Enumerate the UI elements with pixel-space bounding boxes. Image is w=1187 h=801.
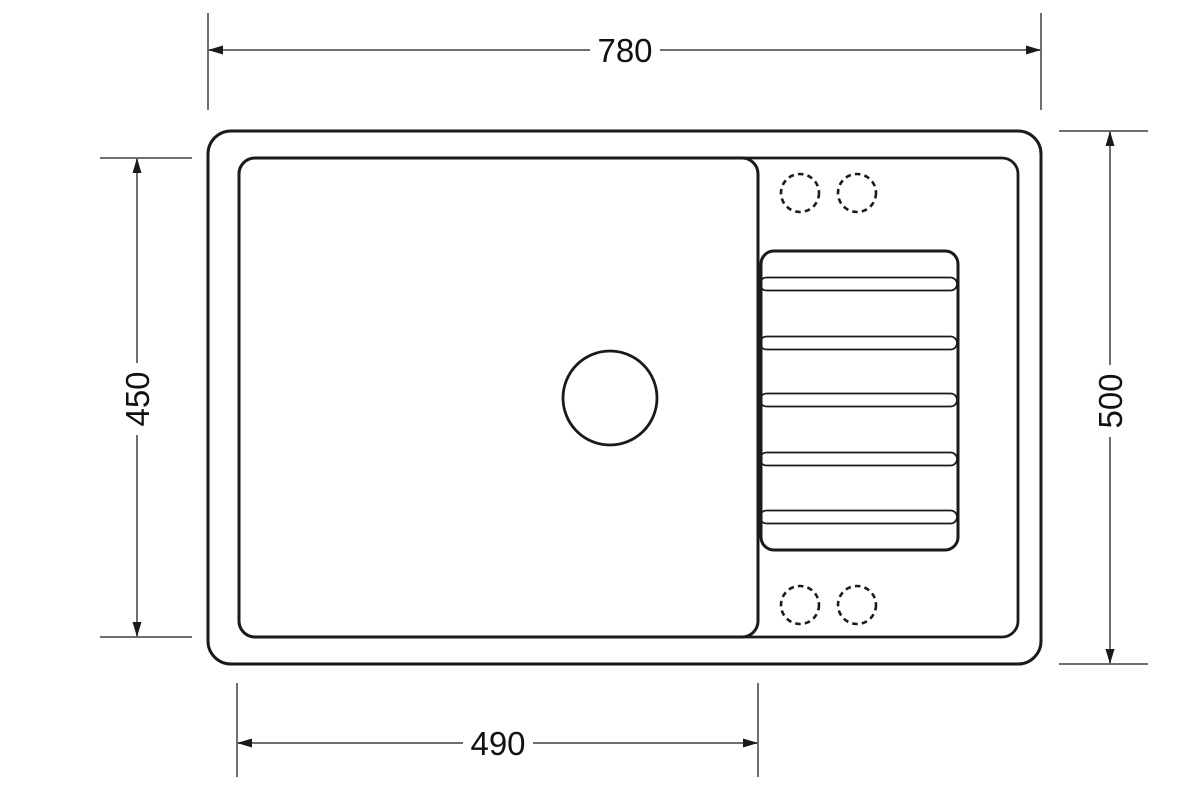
tap-hole-dashed xyxy=(838,586,876,624)
tap-hole-dashed xyxy=(838,174,876,212)
dimension-label-backgrounds xyxy=(117,30,1130,763)
arrowhead-icon xyxy=(1106,131,1115,146)
arrowhead-icon xyxy=(237,739,252,748)
dimension-lines-group xyxy=(100,13,1148,777)
sink-bowl xyxy=(239,158,758,637)
arrowhead-icon xyxy=(133,158,142,173)
dimension-arrowheads-group xyxy=(133,46,1115,748)
sink-technical-drawing: 780 450 500 490 xyxy=(0,0,1187,801)
drainer-board xyxy=(761,251,958,550)
arrowhead-icon xyxy=(133,622,142,637)
dim-left-label: 450 xyxy=(119,371,156,426)
dim-right-label: 500 xyxy=(1092,373,1129,428)
dim-top-label: 780 xyxy=(597,32,652,69)
tap-holes-group xyxy=(781,174,876,624)
drain-hole xyxy=(563,351,657,445)
sink-inner-rim xyxy=(239,158,1018,637)
sink-outlines-group xyxy=(208,131,1041,664)
drainer-groove xyxy=(760,511,957,524)
arrowhead-icon xyxy=(1026,46,1041,55)
arrowhead-icon xyxy=(1106,649,1115,664)
tap-hole-dashed xyxy=(781,586,819,624)
dim-bottom-label: 490 xyxy=(470,725,525,762)
drainer-groove xyxy=(760,394,957,407)
arrowhead-icon xyxy=(743,739,758,748)
dimension-labels-group: 780 450 500 490 xyxy=(119,32,1129,762)
drainer-grooves-group xyxy=(760,278,957,524)
tap-hole-dashed xyxy=(781,174,819,212)
drainer-groove xyxy=(760,337,957,350)
arrowhead-icon xyxy=(208,46,223,55)
drainer-groove xyxy=(760,453,957,466)
drawing-canvas: 780 450 500 490 xyxy=(0,0,1187,801)
sink-outer-edge xyxy=(208,131,1041,664)
drainer-groove xyxy=(760,278,957,291)
